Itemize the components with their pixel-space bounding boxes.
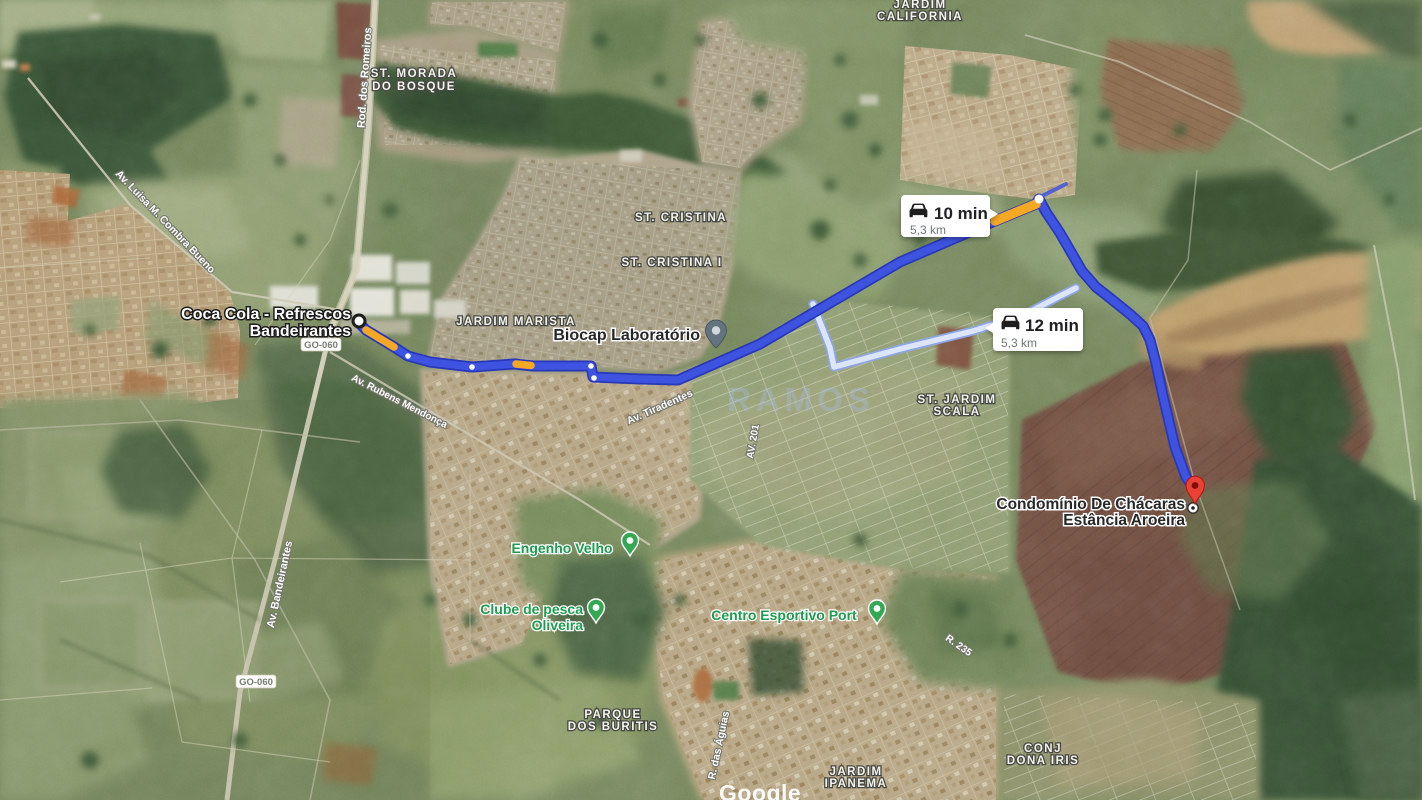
svg-text:Google: Google	[719, 780, 801, 800]
svg-text:JARDIM: JARDIM	[829, 766, 882, 778]
svg-text:RAMOS: RAMOS	[727, 381, 875, 418]
svg-text:Oliveira: Oliveira	[532, 617, 584, 633]
svg-text:Estância Aroeira: Estância Aroeira	[1063, 512, 1185, 529]
svg-text:10 min: 10 min	[934, 204, 988, 223]
svg-text:12 min: 12 min	[1025, 316, 1079, 335]
svg-text:SCALA: SCALA	[933, 406, 980, 418]
svg-text:DONA IRIS: DONA IRIS	[1007, 755, 1080, 767]
svg-text:Biocap Laboratório: Biocap Laboratório	[553, 327, 700, 344]
svg-text:ST. MORADA: ST. MORADA	[371, 68, 458, 80]
svg-text:CONJ: CONJ	[1024, 743, 1062, 755]
svg-text:ST. JARDIM: ST. JARDIM	[918, 394, 997, 406]
svg-text:Coca Cola - Refrescos: Coca Cola - Refrescos	[181, 306, 351, 323]
svg-text:GO-060: GO-060	[304, 340, 338, 351]
svg-text:5,3 km: 5,3 km	[1001, 336, 1037, 350]
svg-text:Condomínio De Chácaras: Condomínio De Chácaras	[996, 496, 1185, 513]
svg-text:Bandeirantes: Bandeirantes	[250, 323, 351, 340]
svg-text:Centro Esportivo Port: Centro Esportivo Port	[711, 607, 857, 623]
svg-text:CALIFORNIA: CALIFORNIA	[877, 11, 963, 23]
svg-text:Clube de pesca: Clube de pesca	[480, 601, 583, 617]
svg-text:GO-060: GO-060	[239, 677, 273, 688]
svg-text:ST. CRISTINA: ST. CRISTINA	[635, 212, 727, 224]
svg-text:5,3 km: 5,3 km	[910, 223, 946, 237]
svg-text:PARQUE: PARQUE	[584, 709, 641, 721]
svg-text:JARDIM: JARDIM	[893, 0, 946, 11]
svg-text:JARDIM MARISTA: JARDIM MARISTA	[456, 316, 576, 328]
svg-text:DO BOSQUE: DO BOSQUE	[372, 81, 456, 93]
svg-text:IPANEMA: IPANEMA	[825, 778, 888, 790]
svg-text:ST. CRISTINA I: ST. CRISTINA I	[621, 257, 722, 269]
svg-text:DOS BURITIS: DOS BURITIS	[568, 721, 659, 733]
svg-text:Engenho Velho: Engenho Velho	[511, 540, 612, 556]
